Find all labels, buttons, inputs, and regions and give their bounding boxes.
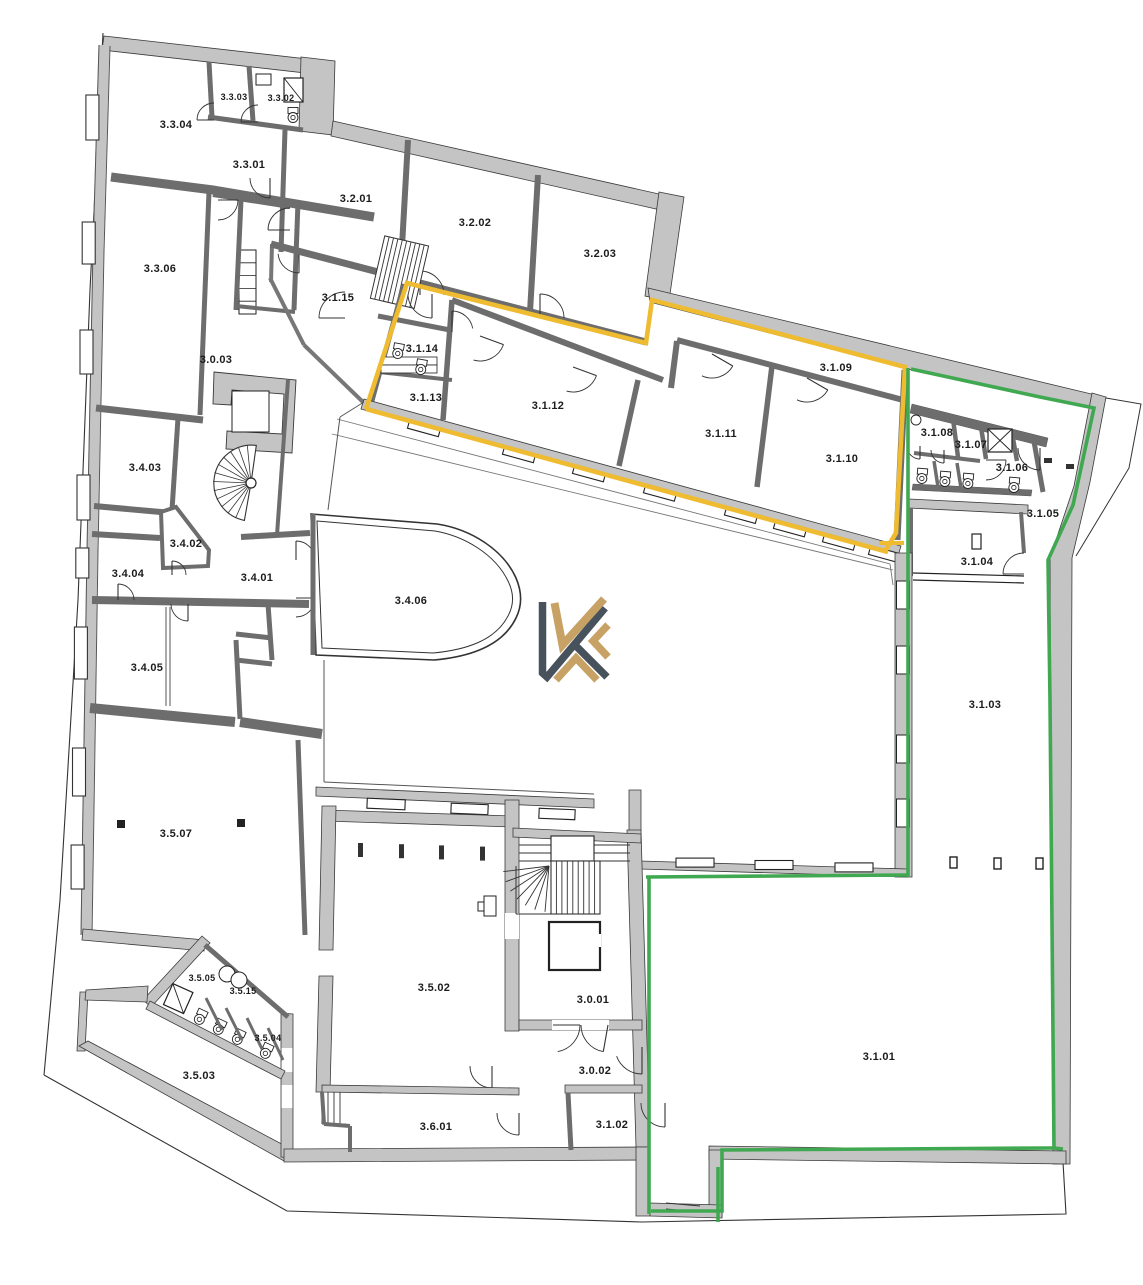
svg-text:3.1.03: 3.1.03	[969, 699, 1001, 711]
svg-text:3.5.07: 3.5.07	[160, 828, 192, 840]
svg-text:3.4.02: 3.4.02	[170, 538, 202, 550]
svg-text:3.4.06: 3.4.06	[395, 595, 427, 607]
svg-text:3.1.15: 3.1.15	[322, 292, 354, 304]
svg-text:3.0.01: 3.0.01	[577, 994, 609, 1006]
svg-text:3.1.09: 3.1.09	[820, 362, 852, 374]
svg-text:3.1.08: 3.1.08	[921, 427, 953, 439]
svg-text:3.2.01: 3.2.01	[340, 193, 372, 205]
svg-text:3.1.06: 3.1.06	[996, 462, 1028, 474]
svg-text:3.1.11: 3.1.11	[705, 428, 737, 440]
svg-text:3.3.02: 3.3.02	[268, 93, 295, 103]
svg-text:3.6.01: 3.6.01	[420, 1121, 452, 1133]
svg-text:3.5.05: 3.5.05	[189, 973, 216, 983]
svg-text:3.1.01: 3.1.01	[863, 1051, 895, 1063]
svg-text:3.0.02: 3.0.02	[579, 1065, 611, 1077]
svg-text:3.2.02: 3.2.02	[459, 217, 491, 229]
svg-text:3.1.10: 3.1.10	[826, 453, 858, 465]
svg-text:3.1.14: 3.1.14	[406, 343, 439, 355]
svg-text:3.3.01: 3.3.01	[233, 159, 265, 171]
svg-text:3.1.04: 3.1.04	[961, 556, 994, 568]
svg-text:3.3.06: 3.3.06	[144, 263, 176, 275]
svg-text:3.1.07: 3.1.07	[955, 439, 987, 451]
svg-text:3.5.15: 3.5.15	[230, 986, 257, 996]
svg-text:3.3.04: 3.3.04	[160, 119, 193, 131]
svg-text:3.3.03: 3.3.03	[221, 92, 248, 102]
svg-text:3.0.03: 3.0.03	[200, 354, 232, 366]
svg-text:3.4.01: 3.4.01	[241, 572, 273, 584]
svg-text:3.1.12: 3.1.12	[532, 400, 564, 412]
svg-text:3.5.02: 3.5.02	[418, 982, 450, 994]
svg-text:3.4.03: 3.4.03	[129, 462, 161, 474]
svg-text:3.1.02: 3.1.02	[596, 1119, 628, 1131]
svg-text:3.4.05: 3.4.05	[131, 662, 163, 674]
svg-text:3.5.03: 3.5.03	[183, 1070, 215, 1082]
svg-text:3.5.04: 3.5.04	[255, 1033, 282, 1043]
svg-text:3.1.05: 3.1.05	[1027, 508, 1059, 520]
svg-text:3.1.13: 3.1.13	[410, 392, 442, 404]
svg-text:3.4.04: 3.4.04	[112, 568, 145, 580]
svg-text:3.2.03: 3.2.03	[584, 248, 616, 260]
